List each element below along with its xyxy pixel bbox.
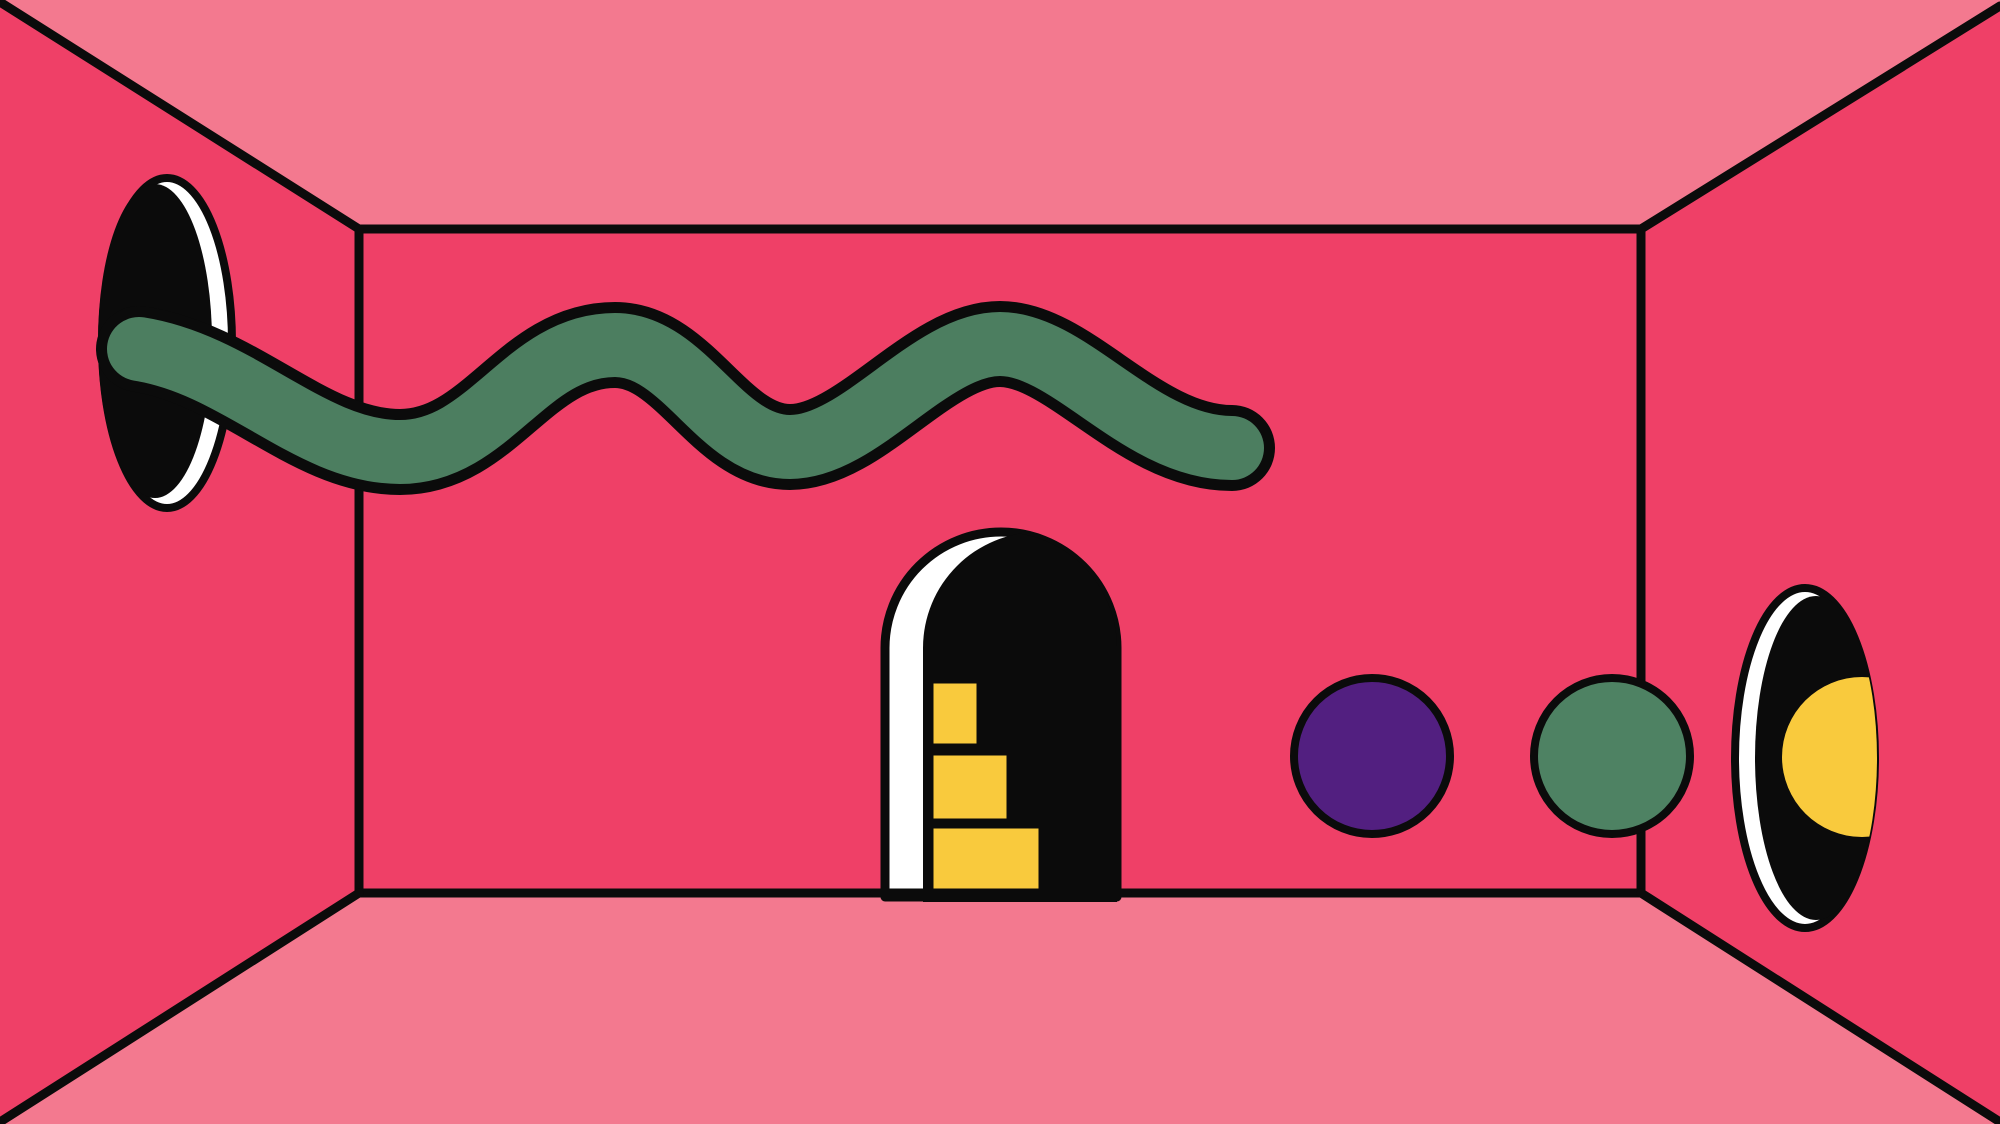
green-ball <box>1534 678 1690 834</box>
step-bottom <box>930 825 1042 893</box>
abstract-room-illustration <box>0 0 2000 1124</box>
step-top <box>930 680 980 747</box>
step-middle <box>930 752 1010 822</box>
illustration-canvas <box>0 0 2000 1124</box>
purple-ball <box>1294 678 1450 834</box>
